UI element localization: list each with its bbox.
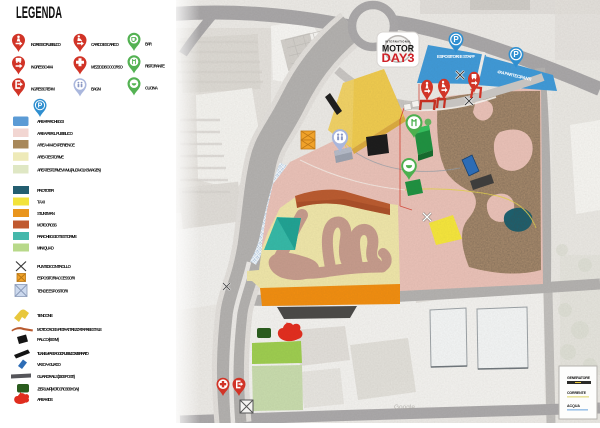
svg-text:BAR: BAR <box>145 42 153 47</box>
svg-text:GUARDRAILS (1500 POSTI): GUARDRAILS (1500 POSTI) <box>37 374 76 379</box>
svg-text:ESPOSITORI E STAFF: ESPOSITORI E STAFF <box>437 54 475 59</box>
svg-text:CORRENTE: CORRENTE <box>567 391 587 395</box>
svg-text:INGRESSO TEAM: INGRESSO TEAM <box>31 87 55 92</box>
svg-text:MOTO CROSS - PISTA ATTREZZATA: MOTO CROSS - PISTA ATTREZZATA FREE STYLE <box>37 327 102 332</box>
svg-text:CUCINA: CUCINA <box>145 86 158 91</box>
svg-text:AREA KIDS: AREA KIDS <box>37 397 53 402</box>
svg-text:MOTO CROSS: MOTO CROSS <box>37 223 57 228</box>
svg-text:TENDE ESPOSITORI: TENDE ESPOSITORI <box>37 289 68 294</box>
svg-text:P: P <box>38 102 43 109</box>
svg-text:P: P <box>513 50 519 59</box>
svg-text:TENDONE: TENDONE <box>37 313 53 318</box>
svg-text:INGRESSO PUBBLICO: INGRESSO PUBBLICO <box>31 42 62 47</box>
svg-text:P: P <box>453 35 459 44</box>
svg-text:PUNTI DI CONTROLLO: PUNTI DI CONTROLLO <box>37 264 72 269</box>
svg-text:ACQUA: ACQUA <box>567 404 580 408</box>
svg-text:TUNNEL + PASSAGGIO PUBBLICO IN: TUNNEL + PASSAGGIO PUBBLICO INTERRATO <box>37 351 90 356</box>
svg-text:INGRESSO 4X4: INGRESSO 4X4 <box>31 65 54 70</box>
svg-text:JEEP JUMP (MOTOCROSS SHOW): JEEP JUMP (MOTOCROSS SHOW) <box>37 387 80 392</box>
svg-text:AREA 4X4 EXPERIENCE: AREA 4X4 EXPERIENCE <box>37 142 75 147</box>
svg-text:TAXI: TAXI <box>37 200 45 205</box>
svg-text:CARICO E SCARICO: CARICO E SCARICO <box>91 42 120 47</box>
svg-text:AREA PER IL PUBBLICO: AREA PER IL PUBBLICO <box>37 131 74 136</box>
svg-text:GENERATORE: GENERATORE <box>567 376 591 380</box>
svg-text:AREA TEST DRIVE VW VIU (AUDI -: AREA TEST DRIVE VW VIU (AUDI - VOLKSWAGE… <box>37 167 102 172</box>
svg-text:MINI QUAD: MINI QUAD <box>37 246 54 251</box>
svg-text:MEZZO DI SOCCORSO: MEZZO DI SOCCORSO <box>91 65 124 70</box>
svg-text:ESPOSITORI ACCESSORI: ESPOSITORI ACCESSORI <box>37 276 75 281</box>
svg-text:STUNTMAN: STUNTMAN <box>37 211 55 216</box>
svg-text:BAGNI: BAGNI <box>91 87 101 92</box>
svg-text:RISTORANTE: RISTORANTE <box>145 64 165 69</box>
svg-text:VASCA + GUADO: VASCA + GUADO <box>37 362 62 367</box>
svg-text:Google: Google <box>394 404 415 411</box>
svg-text:AREA TEST DRIVE: AREA TEST DRIVE <box>37 155 64 160</box>
svg-text:PARCHEGGIO TEST DRIVE: PARCHEGGIO TEST DRIVE <box>37 234 77 239</box>
svg-text:PROTOTIPI: PROTOTIPI <box>37 188 54 193</box>
svg-text:AREA PARCHEGGI: AREA PARCHEGGI <box>37 119 64 124</box>
svg-text:LEGENDA: LEGENDA <box>16 4 62 22</box>
svg-text:DAY3: DAY3 <box>382 53 415 65</box>
svg-text:PALCO (600 M): PALCO (600 M) <box>37 337 60 342</box>
